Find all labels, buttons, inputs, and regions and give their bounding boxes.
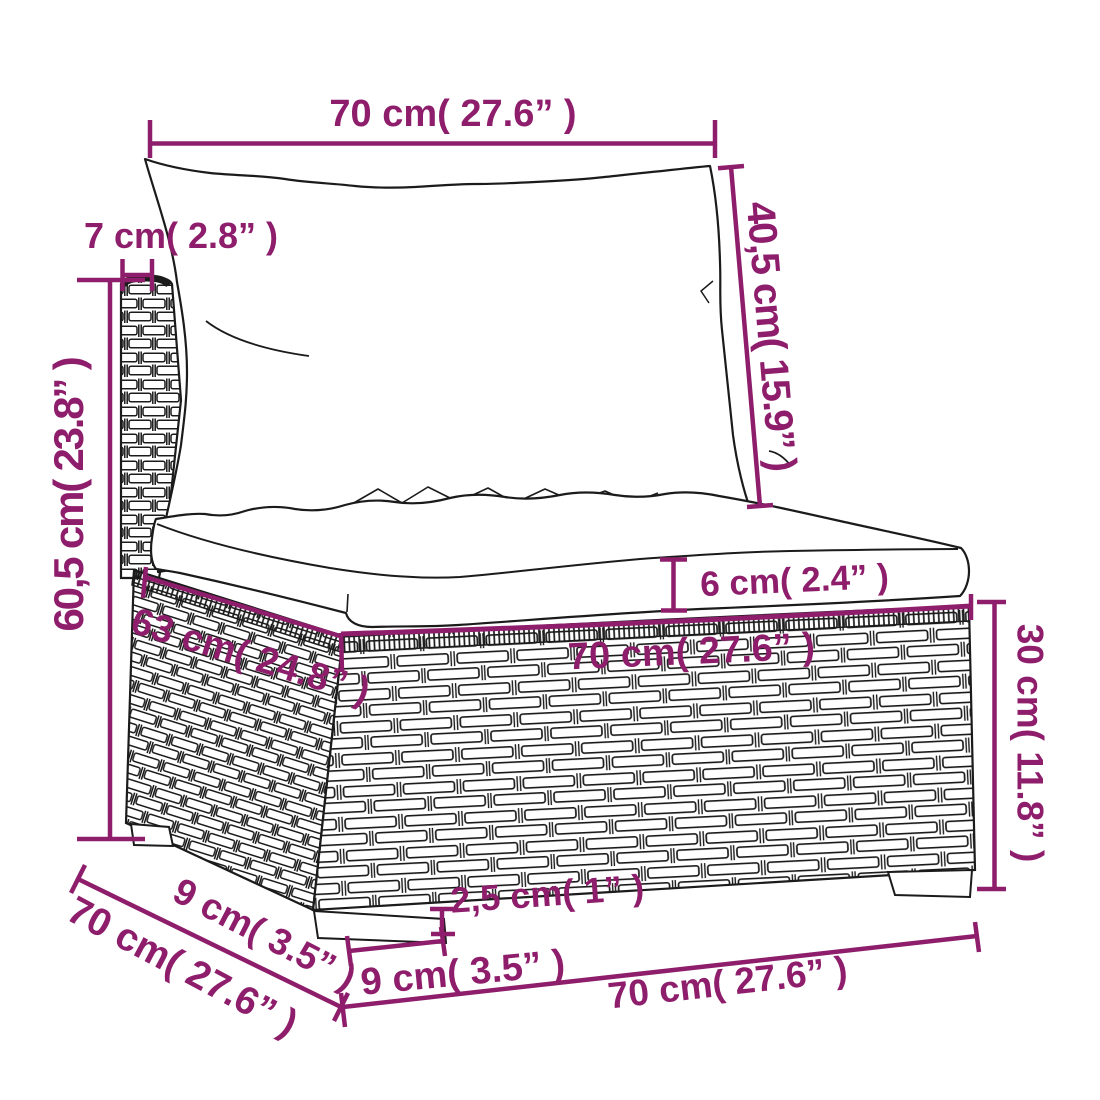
svg-text:70 cm( 27.6” ): 70 cm( 27.6” ): [329, 93, 576, 135]
svg-text:30 cm( 11.8” ): 30 cm( 11.8” ): [1010, 624, 1051, 863]
svg-text:60,5 cm( 23.8” ): 60,5 cm( 23.8” ): [45, 358, 92, 631]
svg-text:7 cm( 2.8” ): 7 cm( 2.8” ): [84, 215, 278, 256]
svg-text:6 cm( 2.4” ): 6 cm( 2.4” ): [699, 557, 889, 604]
